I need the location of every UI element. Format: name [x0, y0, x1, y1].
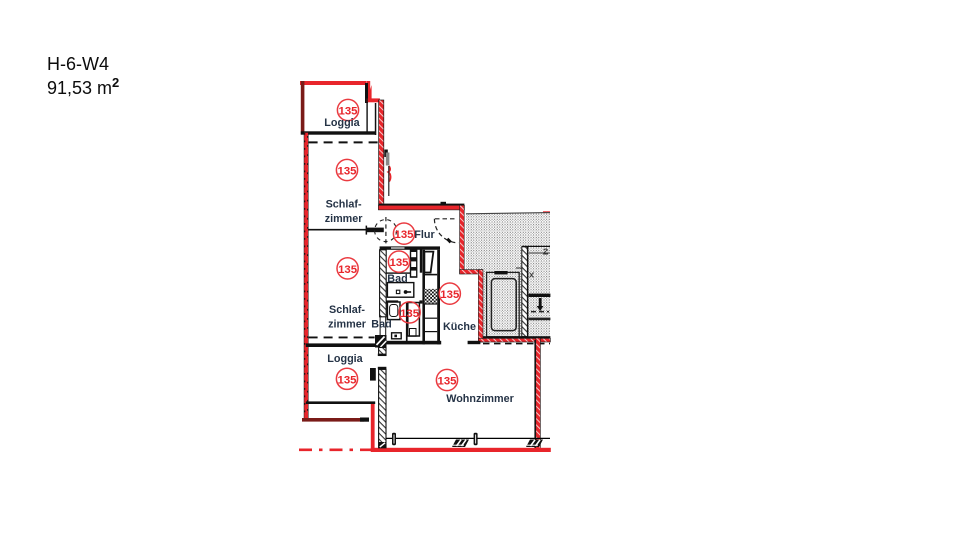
svg-text:135: 135	[394, 229, 414, 241]
svg-text:Loggia: Loggia	[324, 117, 360, 129]
svg-text:135: 135	[440, 289, 460, 301]
svg-text:zimmer: zimmer	[325, 213, 364, 225]
svg-text:135: 135	[389, 257, 409, 269]
svg-text:135: 135	[338, 264, 358, 276]
svg-text:Schlaf-: Schlaf-	[326, 198, 362, 210]
svg-text:zimmer: zimmer	[328, 318, 367, 330]
svg-text:135: 135	[437, 376, 457, 388]
svg-text:135: 135	[338, 106, 358, 118]
svg-text:135: 135	[337, 374, 357, 386]
svg-text:Bad: Bad	[387, 273, 407, 285]
svg-text:Flur: Flur	[414, 229, 435, 241]
svg-text:135: 135	[400, 308, 420, 320]
svg-text:Bad: Bad	[371, 319, 391, 331]
svg-text:91,53 m2: 91,53 m2	[47, 75, 119, 98]
svg-text:Wohnzimmer: Wohnzimmer	[446, 393, 514, 405]
svg-text:Schlaf-: Schlaf-	[329, 304, 365, 316]
svg-text:135: 135	[337, 166, 357, 178]
svg-text:Loggia: Loggia	[327, 353, 363, 365]
svg-text:H-6-W4: H-6-W4	[47, 54, 109, 74]
svg-text:Küche: Küche	[443, 321, 476, 333]
